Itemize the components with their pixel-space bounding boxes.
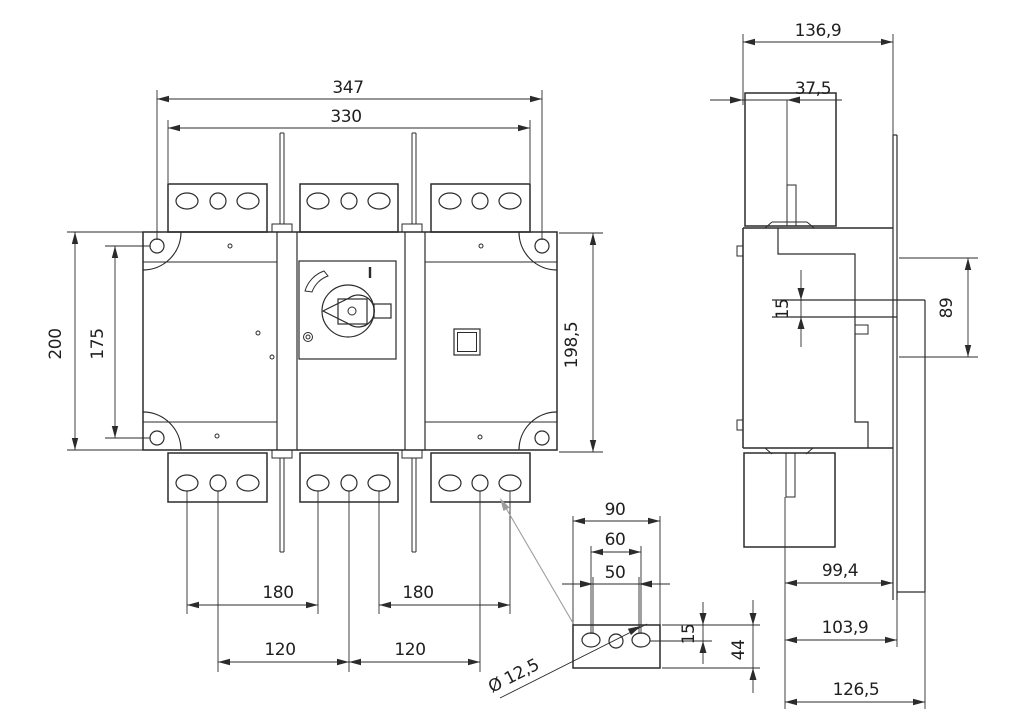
top-terminal-side [745,93,836,226]
dim-detail-height: 44 [729,640,749,661]
dim-detail-pitch-inner: 50 [605,563,626,583]
handle-center-hole [348,307,356,315]
dim-front-terminal-span: 330 [330,107,361,127]
side-view: 136,9 37,5 15 89 99,4 103,9 126,5 [710,21,978,709]
dim-front-overall-width: 347 [332,78,363,98]
body-step [778,228,868,448]
detail-reference-arrow [497,496,510,511]
dim-side-depth-a: 99,4 [822,561,858,581]
bottom-terminal-side [744,453,835,547]
dim-side-shaft-size: 15 [773,299,793,320]
dim-side-handle-plate: 89 [937,298,957,319]
corner-arc [143,412,181,450]
panel-screw-icon [306,335,310,339]
detail-reference-line [503,503,573,623]
dim-front-hole-pitch-v: 175 [88,328,108,359]
dimension-drawing: 347 330 200 175 198,5 180 180 120 120 [0,0,1024,724]
dim-front-hole-span-right: 180 [402,583,433,603]
mounting-hole [535,431,549,445]
position-arc-mark [305,271,328,292]
dim-front-height-right: 198,5 [562,322,582,369]
panel-screw-icon [304,333,313,342]
mounting-hole [150,431,164,445]
dim-front-pole-pitch-right: 120 [394,640,425,660]
front-view: 347 330 200 175 198,5 180 180 120 120 [46,78,603,672]
dim-side-depth-c: 126,5 [833,680,880,700]
dim-detail-width: 90 [605,500,626,520]
phase-barriers [272,133,422,552]
dim-front-height: 200 [46,328,66,359]
dim-side-depth: 136,9 [795,21,842,41]
dim-detail-edge-offset: 15 [679,624,699,645]
side-dimensions: 136,9 37,5 15 89 99,4 103,9 126,5 [710,21,978,709]
dim-front-hole-span-left: 180 [262,583,293,603]
side-tab [855,325,868,334]
dim-front-pole-pitch-left: 120 [264,640,295,660]
switch-body [143,232,557,450]
front-dimensions: 347 330 200 175 198,5 180 180 120 120 [46,78,603,672]
dim-side-shaft-offset: 37,5 [795,79,831,99]
terminal-detail-view: 90 60 50 15 44 Ø 12,5 [485,496,760,698]
handle-panel [299,261,396,359]
top-terminals [168,184,530,232]
handle-tab [374,304,391,318]
padlock-window-inner [458,333,477,352]
mounting-hole [535,239,549,253]
dim-detail-pitch-outer: 60 [605,530,626,550]
mounting-hole [150,239,164,253]
drawing-canvas: 347 330 200 175 198,5 180 180 120 120 [0,0,1024,724]
dim-side-depth-b: 103,9 [822,618,869,638]
